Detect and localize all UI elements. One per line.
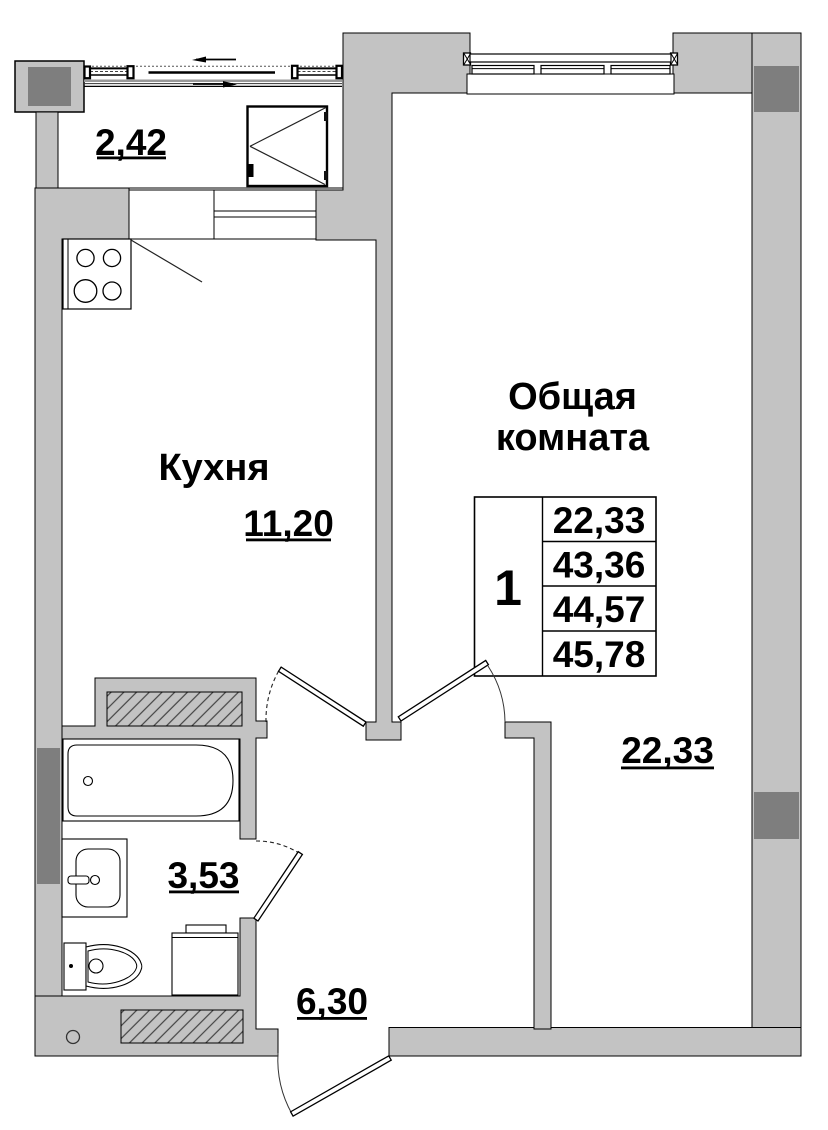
svg-text:44,57: 44,57 <box>553 589 646 630</box>
svg-text:6,30: 6,30 <box>296 981 368 1022</box>
svg-text:1: 1 <box>494 560 522 616</box>
svg-text:комната: комната <box>496 417 650 459</box>
svg-text:Кухня: Кухня <box>158 447 269 489</box>
svg-text:22,33: 22,33 <box>621 730 714 771</box>
svg-text:Общая: Общая <box>508 376 637 418</box>
svg-text:43,36: 43,36 <box>553 545 646 586</box>
svg-text:11,20: 11,20 <box>243 503 334 544</box>
svg-text:22,33: 22,33 <box>553 500 646 541</box>
svg-text:45,78: 45,78 <box>553 634 646 675</box>
svg-text:3,53: 3,53 <box>167 855 239 896</box>
